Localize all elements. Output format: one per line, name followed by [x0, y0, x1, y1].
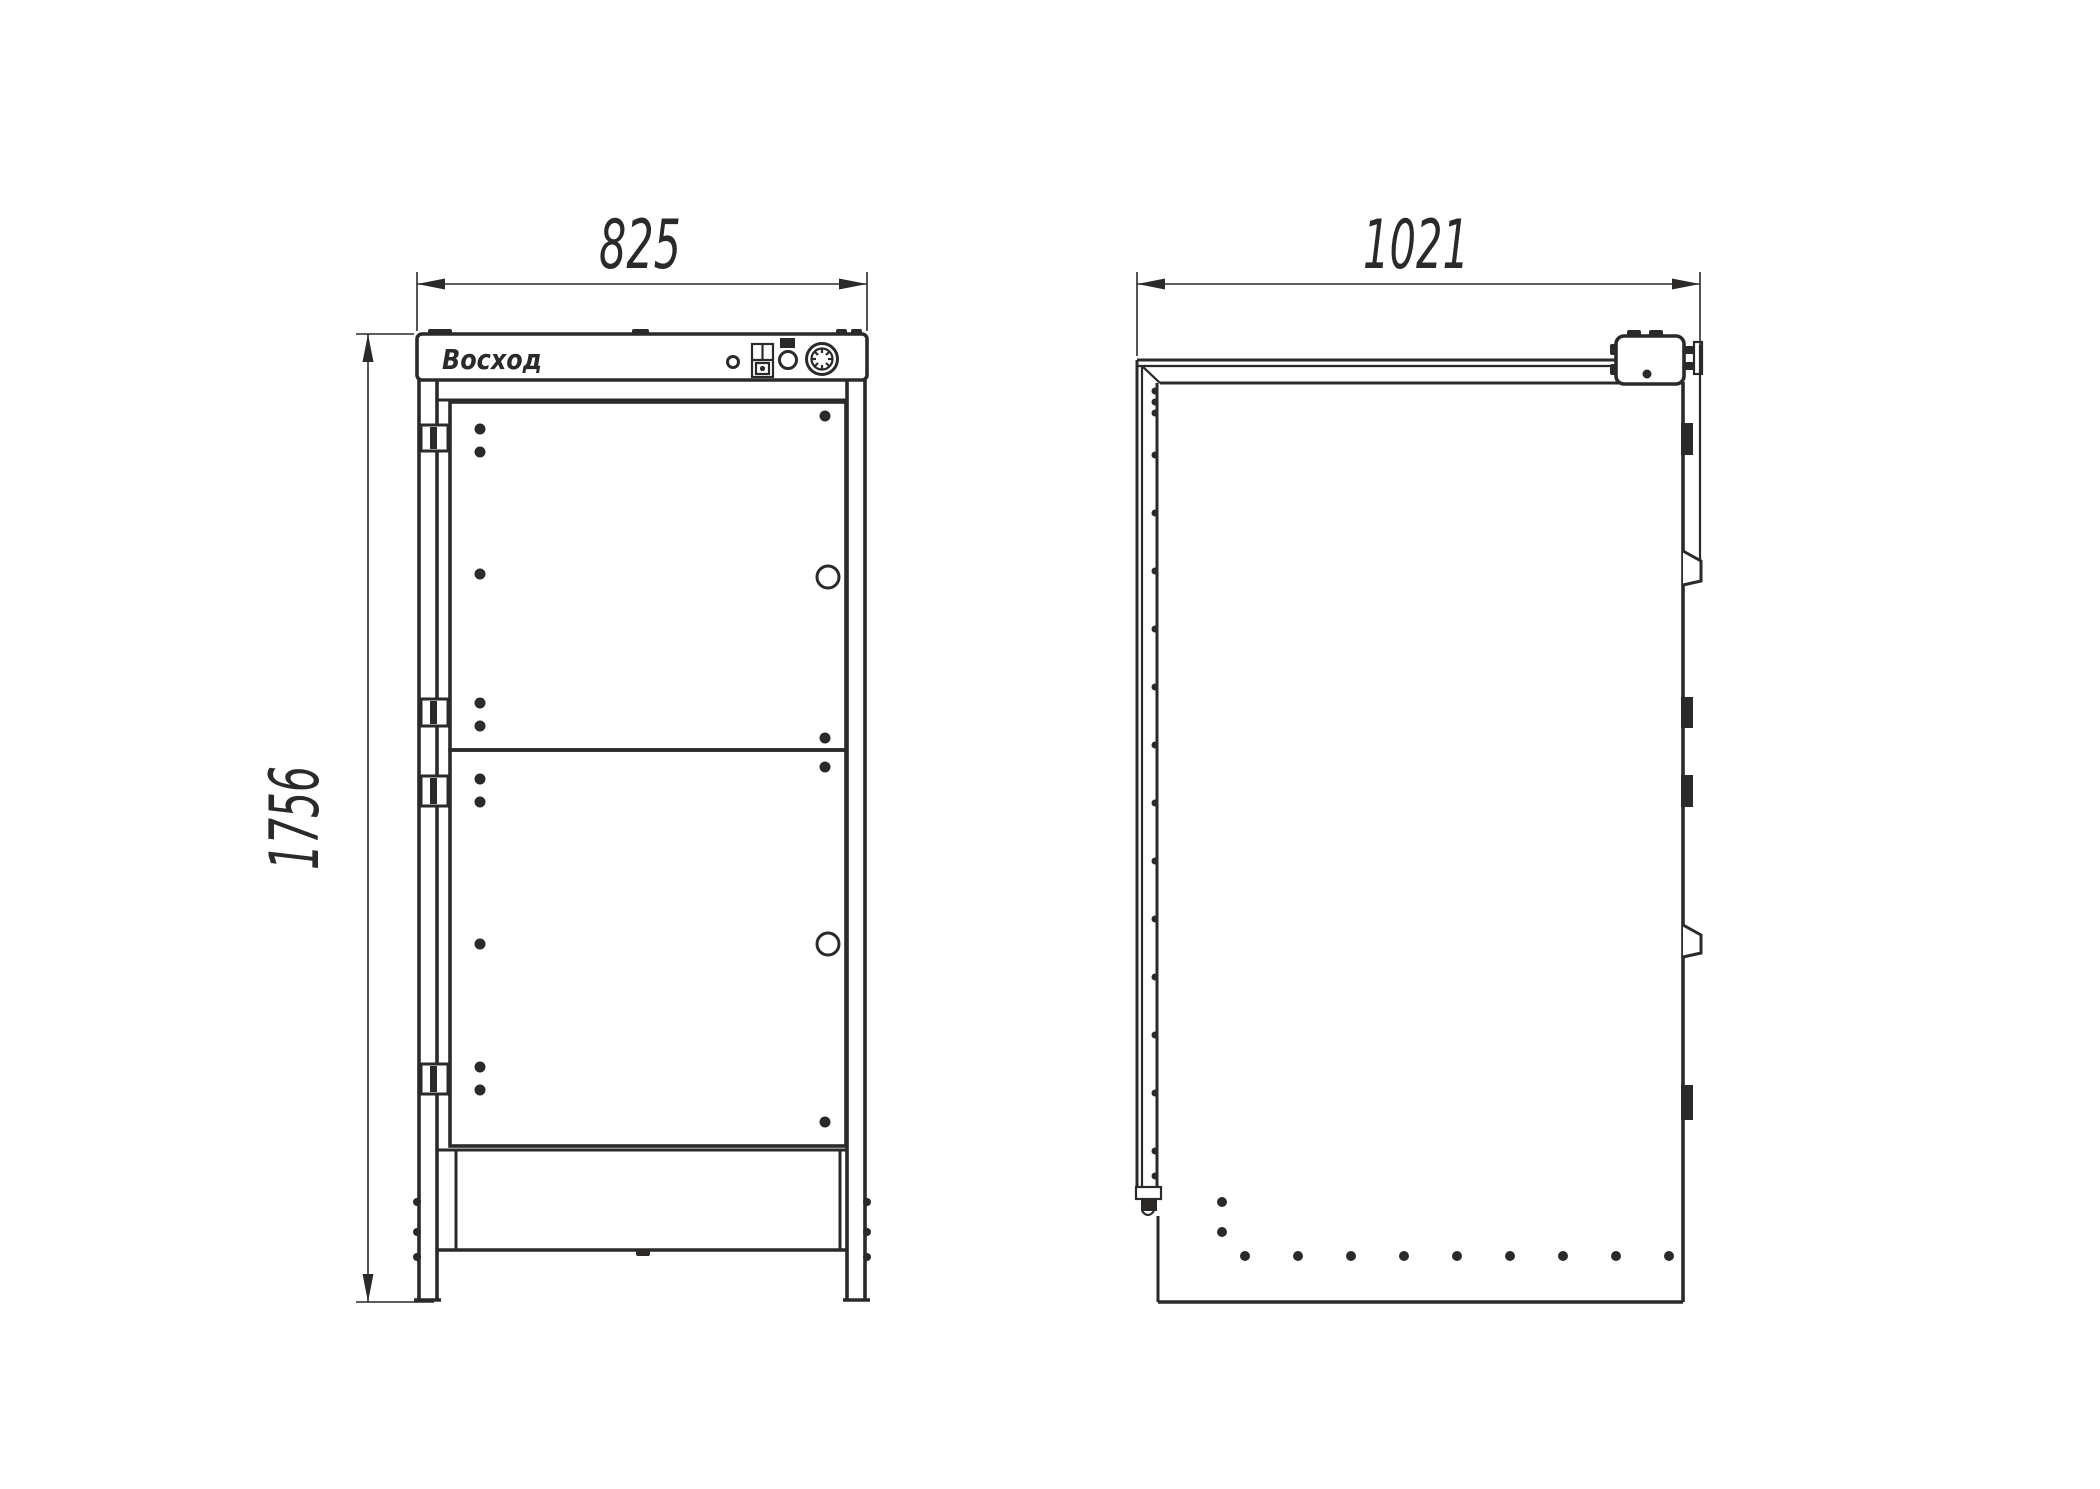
door-hinges: [421, 425, 448, 1094]
arrow-down-icon: [363, 1274, 374, 1302]
lower-door-screws: [475, 762, 831, 1128]
cabinet-body: [413, 380, 871, 1300]
plinth-panel: [437, 1150, 847, 1256]
height-dimension-label: 1756: [256, 766, 335, 870]
front-height-dimension: 1756: [256, 334, 434, 1302]
hinge-icon: [421, 1064, 448, 1094]
hinge-block: [1681, 1085, 1693, 1120]
side-depth-dimension: 1021: [1137, 206, 1700, 356]
cabinet-drawing: 825 1756 Восход: [0, 0, 2100, 1489]
arrow-right-icon: [839, 279, 867, 290]
side-view: 1021: [1136, 206, 1702, 1302]
front-width-dimension: 825: [417, 206, 867, 331]
hinge-block: [1681, 697, 1693, 728]
side-body: [1137, 360, 1683, 1302]
lower-door: [450, 750, 846, 1146]
upper-door-screws: [475, 411, 831, 744]
arrow-right-icon: [1672, 279, 1700, 290]
depth-dimension-label: 1021: [1363, 206, 1469, 285]
control-panel: Восход: [417, 329, 867, 380]
door-bottom-foot: [1136, 1187, 1161, 1215]
hinge-icon: [421, 699, 448, 726]
hinge-icon: [421, 776, 448, 806]
width-dimension-label: 825: [599, 206, 681, 285]
top-hinge-box: [1610, 330, 1702, 384]
hinge-icon: [421, 425, 448, 451]
side-door-edge: [1136, 366, 1161, 1215]
hinge-block: [1681, 423, 1693, 455]
bottom-vent-holes: [1217, 1197, 1674, 1261]
brand-logo: Восход: [442, 343, 542, 376]
door-stop-bracket-icon: [1683, 551, 1701, 585]
technical-drawing-page: 825 1756 Восход: [0, 0, 2100, 1489]
lower-door-lock-icon: [817, 933, 839, 955]
top-chamfer: [1142, 366, 1160, 383]
arrow-up-icon: [363, 334, 374, 362]
switch-tab-icon: [780, 338, 795, 348]
front-view: 825 1756 Восход: [256, 206, 871, 1302]
upper-door-lock-icon: [817, 566, 839, 588]
hinge-block: [1681, 775, 1693, 807]
upper-door: [450, 402, 846, 750]
door-stop-bracket-icon: [1683, 925, 1701, 957]
arrow-left-icon: [1137, 279, 1165, 290]
arrow-left-icon: [417, 279, 445, 290]
